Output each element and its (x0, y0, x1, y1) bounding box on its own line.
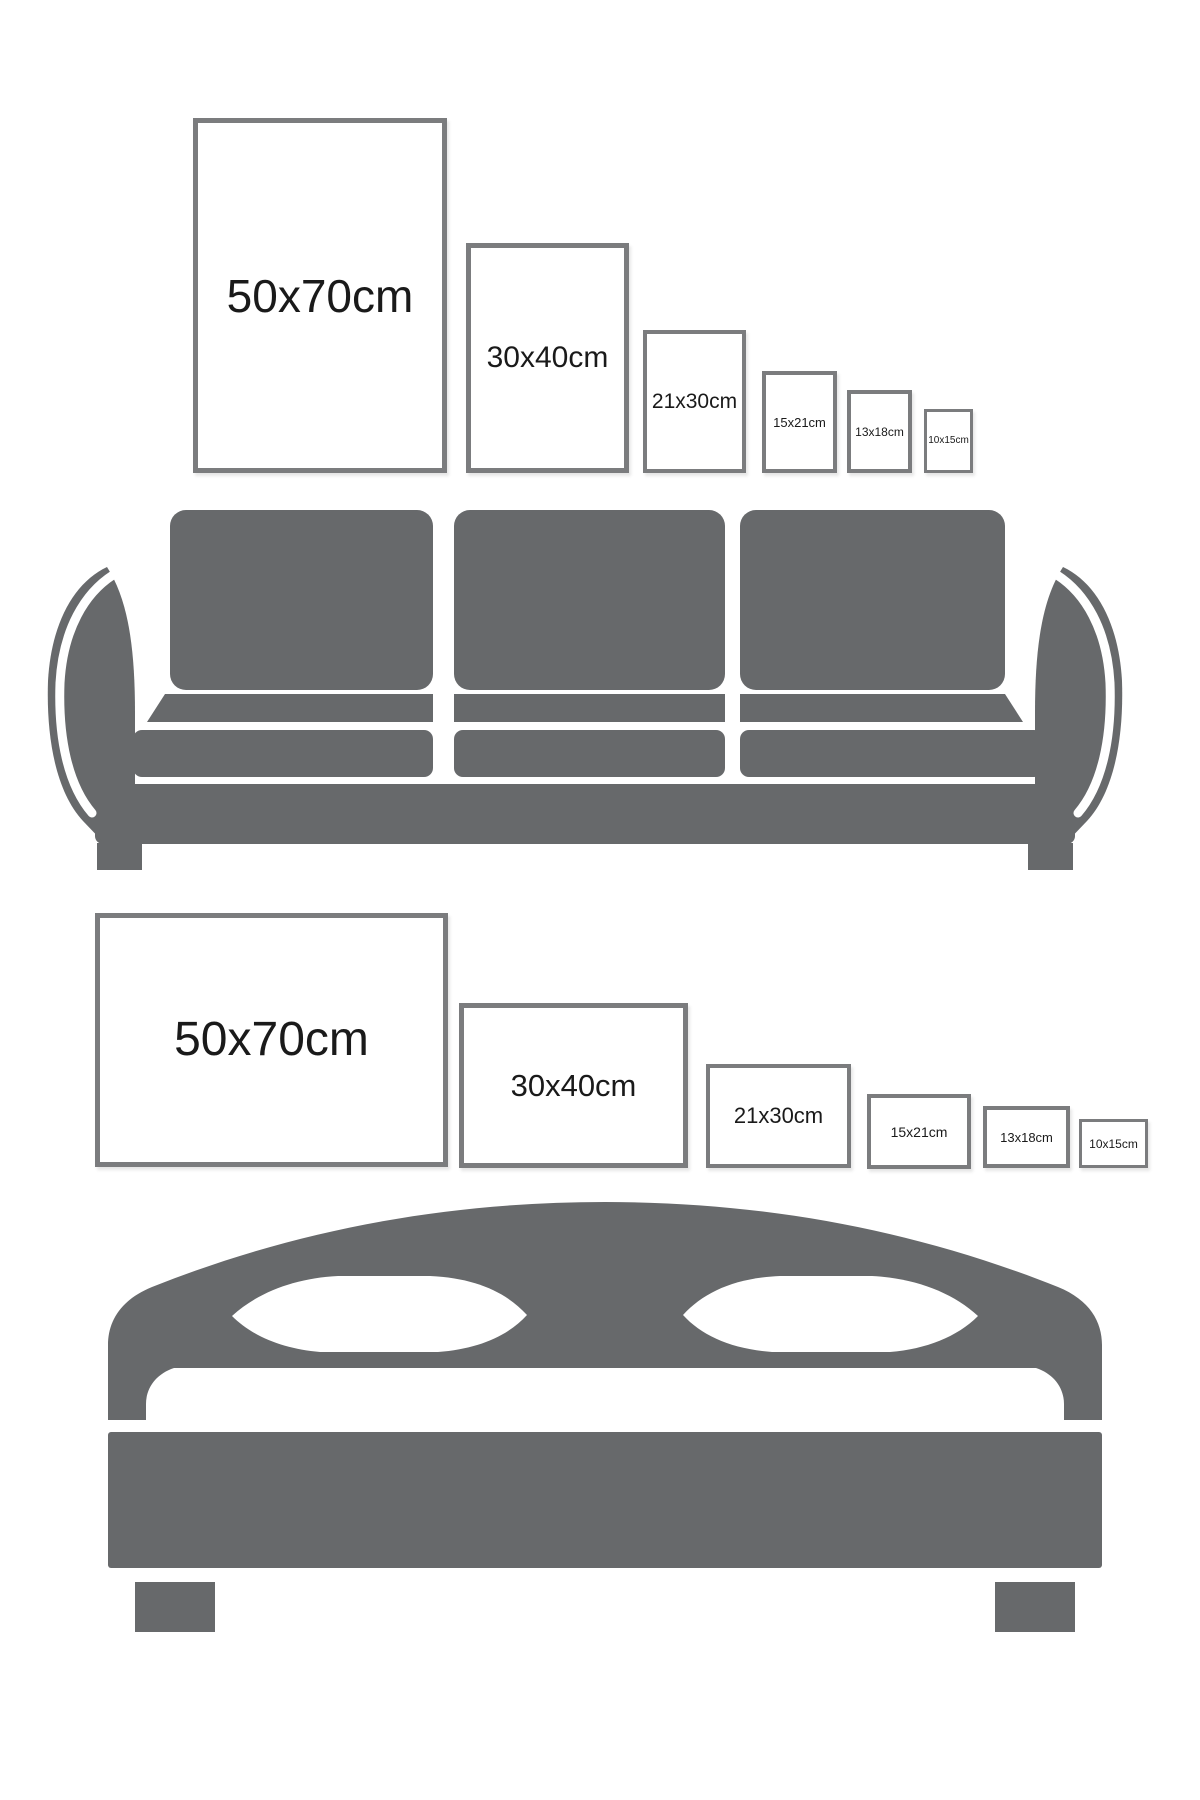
bed-foot-right (995, 1582, 1075, 1632)
bed-base (108, 1432, 1102, 1568)
size-comparison-chart: 50x70cm30x40cm21x30cm15x21cm13x18cm10x15… (0, 0, 1200, 1800)
bed-scene: 50x70cm30x40cm21x30cm15x21cm13x18cm10x15… (0, 0, 1200, 1800)
frame-size-label: 13x18cm (1000, 1131, 1053, 1144)
frame-30x40cm-landscape: 30x40cm (459, 1003, 688, 1168)
bed-foot-left (135, 1582, 215, 1632)
frame-15x21cm-landscape: 15x21cm (867, 1094, 971, 1169)
frame-size-label: 21x30cm (734, 1105, 823, 1127)
frame-size-label: 10x15cm (1089, 1138, 1138, 1150)
frame-50x70cm-landscape: 50x70cm (95, 913, 448, 1167)
frame-10x15cm-landscape: 10x15cm (1079, 1119, 1148, 1168)
bed-illustration (100, 1190, 1110, 1640)
frame-size-label: 30x40cm (511, 1070, 637, 1101)
frame-size-label: 50x70cm (174, 1016, 369, 1064)
frame-21x30cm-landscape: 21x30cm (706, 1064, 851, 1168)
frame-size-label: 15x21cm (891, 1125, 948, 1139)
frame-13x18cm-landscape: 13x18cm (983, 1106, 1070, 1168)
